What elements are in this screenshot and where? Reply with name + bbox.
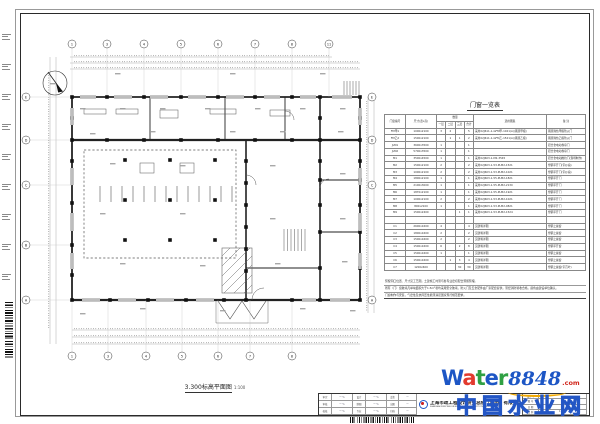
table-cell: [455, 237, 464, 244]
svg-text:8: 8: [291, 42, 293, 46]
table-cell: [446, 223, 455, 230]
table-cell: 1: [464, 148, 473, 155]
table-cell: 1: [437, 250, 446, 257]
table-cell: M3: [385, 169, 406, 176]
watermark-letter: W: [441, 366, 462, 390]
table-cell: [455, 148, 464, 155]
table-cell: C6: [385, 257, 406, 264]
schedule-header: 一层: [437, 121, 446, 128]
table-row: M71000x210022采用02J603-1-53-PLM2-1021塑钢平开…: [385, 196, 586, 203]
fold-mark: [2, 34, 12, 43]
table-cell: 1: [437, 155, 446, 162]
table-row: JLM25700x350011铝合金电动卷帘门: [385, 148, 586, 155]
table-cell: 2: [464, 169, 473, 176]
table-row: C61500x1600134见建筑详图塑钢上悬窗: [385, 257, 586, 264]
schedule-notes: 预留洞口位置、尺寸见工艺图，土建施工时须与各专业密切配合预留预埋。所有（门）窗玻…: [384, 279, 586, 299]
table-cell: 5: [464, 128, 473, 135]
table-cell: 1: [464, 203, 473, 210]
table-cell: [446, 203, 455, 210]
fold-mark: [2, 184, 12, 193]
svg-text:E: E: [371, 95, 373, 99]
table-cell: 塑钢平开门: [547, 176, 586, 183]
table-cell: M5: [385, 182, 406, 189]
table-cell: [446, 182, 455, 189]
table-cell: 见建筑详图: [474, 243, 547, 250]
svg-text:6: 6: [217, 42, 219, 46]
signature-cells: 审定~∿设计~∿审核~∿制图~∿校核~∿专业~∿: [319, 394, 387, 415]
table-cell: [446, 237, 455, 244]
table-row: M91500x240011采用02J603-1-53-PLM2-1524塑钢平开…: [385, 209, 586, 216]
table-cell: [455, 176, 464, 183]
table-row: M52100x300011采用02J603-1-55-PLM2-2130塑钢平开…: [385, 182, 586, 189]
table-cell: [455, 182, 464, 189]
table-cell: 塑钢上悬窗: [547, 257, 586, 264]
table-row: C12600x160044见建筑详图塑钢上悬窗: [385, 223, 586, 230]
table-cell: [455, 128, 464, 135]
stamp-cells: 会签~出图~归档~: [387, 394, 417, 415]
table-cell: [455, 250, 464, 257]
table-cell: 见建筑详图: [474, 264, 547, 271]
table-cell: C3: [385, 237, 406, 244]
note-line: 预留洞口位置、尺寸见工艺图，土建施工时须与各专业密切配合预留预埋。: [384, 279, 586, 286]
table-cell: 30: [455, 264, 464, 271]
table-cell: 塑钢平开门(带纱扇): [547, 162, 586, 169]
table-cell: [455, 216, 464, 223]
table-cell: 见建筑详图: [474, 250, 547, 257]
table-cell: 1000x2100: [406, 128, 437, 135]
table-cell: 3: [455, 257, 464, 264]
table-cell: [446, 216, 455, 223]
table-cell: [474, 148, 547, 155]
svg-text:3: 3: [107, 354, 109, 358]
table-cell: 1: [455, 209, 464, 216]
table-cell: 塑钢上悬窗: [547, 250, 586, 257]
water8848-word: Water: [441, 368, 507, 389]
table-cell: [455, 223, 464, 230]
table-cell: [385, 216, 406, 223]
table-cell: 铝合金电动推拉门(现场制作): [547, 155, 586, 162]
table-cell: 钢质隔热甲级防火门: [547, 128, 586, 135]
table-row: M21500x210022采用02J603-1-53-PLM2-1521塑钢平开…: [385, 162, 586, 169]
fold-mark: [2, 214, 12, 223]
table-cell: 塑钢平开门: [547, 182, 586, 189]
table-cell: 30: [464, 264, 473, 271]
schedule-header: 选用图集: [474, 115, 547, 129]
svg-text:11: 11: [327, 42, 331, 46]
table-cell: [455, 230, 464, 237]
table-cell: 采用02J611-1-GFM甲-1021(A)(钢质甲级): [474, 128, 547, 135]
table-cell: 2: [464, 237, 473, 244]
table-cell: M4: [385, 176, 406, 183]
svg-text:3: 3: [106, 42, 108, 46]
water8848-number: 8848: [508, 370, 561, 389]
table-cell: 1000x2100: [406, 196, 437, 203]
fold-mark: [2, 154, 12, 163]
table-cell: M9: [385, 209, 406, 216]
water8848-dotcom: .com: [562, 379, 580, 387]
table-cell: 1: [464, 189, 473, 196]
table-cell: 1800x1600: [406, 230, 437, 237]
table-cell: 1: [455, 135, 464, 142]
plan-title-wrap: 3.300标高平面图1:100: [150, 374, 280, 393]
plan-title: 3.300标高平面图: [185, 382, 232, 393]
table-cell: C5: [385, 250, 406, 257]
table-cell: 塑钢上悬窗: [547, 223, 586, 230]
fold-mark: [2, 124, 12, 133]
table-cell: 2: [437, 162, 446, 169]
svg-text:E: E: [25, 95, 27, 99]
table-cell: [446, 169, 455, 176]
door-window-schedule: 门窗一览表 门窗编号尺寸(宽x高)数量选用图集备 注一层二层三层合计FM甲110…: [384, 92, 586, 271]
table-cell: 1: [446, 257, 455, 264]
table-cell: 4: [464, 257, 473, 264]
table-cell: [446, 230, 455, 237]
table-cell: [437, 209, 446, 216]
table-cell: 1500x1600: [406, 250, 437, 257]
table-cell: 3600x3500: [406, 142, 437, 149]
table-cell: [437, 257, 446, 264]
table-cell: 1: [437, 203, 446, 210]
table-cell: [455, 196, 464, 203]
table-cell: [455, 203, 464, 210]
table-cell: 采用02J603-1-55-PLM2-1921: [474, 189, 547, 196]
table-cell: [446, 264, 455, 271]
table-row: C31500x160022见建筑详图塑钢上悬窗: [385, 237, 586, 244]
table-row: C21800x160022见建筑详图塑钢上悬窗: [385, 230, 586, 237]
table-row: M13500x450011采用02J603-1-M2-3545铝合金电动推拉门(…: [385, 155, 586, 162]
table-row: C71200x6003030见建筑详图塑钢上悬窗(带百叶): [385, 264, 586, 271]
svg-text:5: 5: [181, 354, 183, 358]
svg-text:D: D: [25, 138, 28, 142]
table-cell: 8: [464, 243, 473, 250]
table-cell: 塑钢平开窗: [547, 243, 586, 250]
table-cell: 2: [437, 196, 446, 203]
table-row: [385, 216, 586, 223]
table-row: M31000x210022采用02J603-1-53-PLM2-1021塑钢平开…: [385, 169, 586, 176]
table-cell: 1800x2100: [406, 176, 437, 183]
table-cell: M6: [385, 189, 406, 196]
svg-text:5: 5: [180, 42, 182, 46]
table-cell: 1: [437, 182, 446, 189]
table-cell: 1500x2100: [406, 135, 437, 142]
table-cell: 采用02J603-1-53-PLM2-1521: [474, 162, 547, 169]
table-cell: 2: [464, 135, 473, 142]
table-cell: 1500x1600: [406, 243, 437, 250]
table-cell: 1: [437, 176, 446, 183]
svg-text:6: 6: [217, 354, 219, 358]
plan-scale: 1:100: [234, 385, 246, 390]
schedule-title: 门窗一览表: [467, 102, 503, 111]
table-cell: [474, 142, 547, 149]
table-cell: JLM2: [385, 148, 406, 155]
fold-mark: [2, 274, 12, 283]
table-cell: [446, 209, 455, 216]
table-cell: 2: [437, 237, 446, 244]
table-cell: JLM1: [385, 142, 406, 149]
table-cell: 3500x4500: [406, 155, 437, 162]
svg-text:4: 4: [145, 354, 147, 358]
table-cell: 采用02J603-1-53-PLM2-1021: [474, 196, 547, 203]
table-row: M61870x210011采用02J603-1-55-PLM2-1921塑钢平开…: [385, 189, 586, 196]
table-cell: M2: [385, 162, 406, 169]
svg-text:D: D: [371, 138, 374, 142]
table-cell: 6: [437, 243, 446, 250]
table-cell: 采用02J611-1-GFM乙-1521(A)(钢质乙级): [474, 135, 547, 142]
fold-mark: [2, 64, 12, 73]
table-cell: C7: [385, 264, 406, 271]
fold-mark: [2, 244, 12, 253]
table-cell: 塑钢平开门: [547, 189, 586, 196]
svg-text:7: 7: [254, 42, 256, 46]
table-cell: [446, 148, 455, 155]
table-cell: 1: [437, 189, 446, 196]
table-cell: 见建筑详图: [474, 230, 547, 237]
table-cell: [446, 189, 455, 196]
company-logo-icon: [419, 400, 428, 409]
table-cell: [446, 155, 455, 162]
table-cell: 采用02J603-1-55-PLM2-2130: [474, 182, 547, 189]
china-water-watermark: 中国水业网: [456, 390, 586, 420]
schedule-header: 数量: [437, 115, 474, 122]
table-cell: 采用02J603-1-53-PLM2-1524: [474, 209, 547, 216]
table-row: M8800x210011采用02J603-1-53-PLM2-0821塑钢平开门: [385, 203, 586, 210]
table-cell: 2600x1600: [406, 223, 437, 230]
table-cell: [446, 243, 455, 250]
table-cell: [437, 264, 446, 271]
floor-plan: 1345678111345678EDCBAEDCA: [20, 13, 384, 396]
table-cell: 800x2100: [406, 203, 437, 210]
table-cell: 2: [455, 243, 464, 250]
water8848-watermark: Water8848.com: [441, 368, 580, 389]
table-cell: 见建筑详图: [474, 257, 547, 264]
table-cell: 4: [464, 223, 473, 230]
table-cell: 1: [464, 155, 473, 162]
note-line: 门窗制作与安装，气密性及抗风压性能须满足国家现行规范要求。: [384, 293, 586, 300]
table-cell: [437, 135, 446, 142]
table-cell: 塑钢上悬窗(带百叶): [547, 264, 586, 271]
table-cell: 塑钢上悬窗: [547, 230, 586, 237]
table-cell: [455, 155, 464, 162]
table-cell: [446, 250, 455, 257]
table-cell: 塑钢平开门(带纱扇): [547, 169, 586, 176]
svg-text:1: 1: [71, 42, 73, 46]
table-row: JLM13600x350011铝合金电动卷帘门: [385, 142, 586, 149]
schedule-header: 二层: [446, 121, 455, 128]
table-cell: 1500x2400: [406, 209, 437, 216]
watermark-letter: r: [498, 366, 507, 390]
schedule-header: 门窗编号: [385, 115, 406, 129]
table-cell: FM甲1: [385, 128, 406, 135]
schedule-header: 备 注: [547, 115, 586, 129]
table-cell: 2: [464, 162, 473, 169]
watermark-letter: a: [462, 366, 475, 390]
svg-text:4: 4: [143, 42, 145, 46]
table-cell: [455, 142, 464, 149]
table-cell: 2: [437, 169, 446, 176]
svg-text:8: 8: [291, 354, 293, 358]
table-cell: 2100x3000: [406, 182, 437, 189]
table-cell: [455, 189, 464, 196]
table-cell: 1500x1600: [406, 237, 437, 244]
watermark-letter: t: [476, 366, 485, 390]
table-cell: C2: [385, 230, 406, 237]
table-cell: 1: [464, 176, 473, 183]
table-cell: 采用02J603-1-55-PLM2-1821: [474, 176, 547, 183]
barcode-vertical: [5, 302, 13, 358]
note-line: 所有（门）窗玻璃凡单块面积大于1.5m²者均采用安全玻璃，防火门及五金配件由厂家…: [384, 286, 586, 293]
table-cell: 1: [464, 250, 473, 257]
table-row: C41500x1600628见建筑详图塑钢平开窗: [385, 243, 586, 250]
table-cell: FM乙2: [385, 135, 406, 142]
table-row: FM乙21500x2100112采用02J611-1-GFM乙-1521(A)(…: [385, 135, 586, 142]
table-row: M41800x210011采用02J603-1-55-PLM2-1821塑钢平开…: [385, 176, 586, 183]
table-cell: M8: [385, 203, 406, 210]
fold-mark: [2, 94, 12, 103]
table-cell: [446, 162, 455, 169]
table-cell: 采用02J603-1-53-PLM2-0821: [474, 203, 547, 210]
table-cell: 采用02J603-1-53-PLM2-1021: [474, 169, 547, 176]
schedule-title-wrap: 门窗一览表: [384, 92, 586, 111]
table-cell: [446, 176, 455, 183]
table-cell: M1: [385, 155, 406, 162]
drawing-sheet: 1345678111345678EDCBAEDCA 3.300标高平面图1:10…: [0, 0, 600, 424]
table-cell: M7: [385, 196, 406, 203]
generated-plan-elements: 1345678111345678EDCBAEDCA: [22, 40, 376, 360]
schedule-header: 尺寸(宽x高): [406, 115, 437, 129]
table-cell: [437, 216, 446, 223]
table-cell: 见建筑详图: [474, 223, 547, 230]
table-cell: [474, 216, 547, 223]
table-cell: [455, 162, 464, 169]
table-cell: 塑钢平开门: [547, 196, 586, 203]
table-cell: 1500x1600: [406, 257, 437, 264]
table-cell: 1: [464, 209, 473, 216]
schedule-table: 门窗编号尺寸(宽x高)数量选用图集备 注一层二层三层合计FM甲11000x210…: [384, 114, 586, 271]
table-cell: 2: [464, 196, 473, 203]
table-cell: 钢质隔热乙级防火门: [547, 135, 586, 142]
table-cell: 1: [464, 182, 473, 189]
table-cell: 3: [437, 128, 446, 135]
watermark-letter: e: [485, 366, 498, 390]
table-cell: C1: [385, 223, 406, 230]
table-cell: [464, 216, 473, 223]
table-cell: 铝合金电动卷帘门: [547, 148, 586, 155]
table-cell: 见建筑详图: [474, 237, 547, 244]
entrance-canopy: [216, 301, 268, 323]
table-cell: [406, 216, 437, 223]
table-cell: [446, 142, 455, 149]
table-cell: [446, 196, 455, 203]
table-cell: 1: [446, 135, 455, 142]
table-cell: [547, 216, 586, 223]
table-cell: C4: [385, 243, 406, 250]
table-cell: 塑钢平开门: [547, 209, 586, 216]
table-cell: 塑钢上悬窗: [547, 237, 586, 244]
table-cell: 塑钢平开门: [547, 203, 586, 210]
table-cell: 1: [437, 148, 446, 155]
table-cell: 1200x600: [406, 264, 437, 271]
table-cell: 铝合金电动卷帘门: [547, 142, 586, 149]
table-cell: 1000x2100: [406, 169, 437, 176]
table-cell: 2: [464, 230, 473, 237]
table-cell: 1500x2100: [406, 162, 437, 169]
table-cell: 2: [446, 128, 455, 135]
svg-text:7: 7: [249, 354, 251, 358]
schedule-header: 三层: [455, 121, 464, 128]
svg-text:1: 1: [71, 354, 73, 358]
table-cell: 5700x3500: [406, 148, 437, 155]
table-cell: 4: [437, 223, 446, 230]
table-cell: [455, 169, 464, 176]
schedule-header: 合计: [464, 121, 473, 128]
table-cell: 采用02J603-1-M2-3545: [474, 155, 547, 162]
table-cell: 1: [464, 142, 473, 149]
barcode-horizontal: [350, 417, 414, 423]
table-row: C51500x160011见建筑详图塑钢上悬窗: [385, 250, 586, 257]
table-cell: 1870x2100: [406, 189, 437, 196]
table-row: FM甲11000x2100325采用02J611-1-GFM甲-1021(A)(…: [385, 128, 586, 135]
table-cell: 2: [437, 230, 446, 237]
table-cell: 1: [437, 142, 446, 149]
